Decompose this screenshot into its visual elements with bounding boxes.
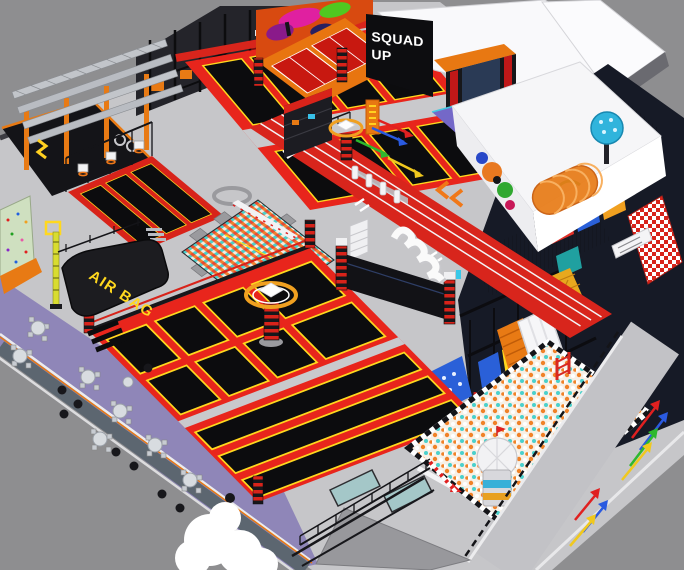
squad-up-text-line2: UP <box>371 47 391 64</box>
striped-corner-post <box>253 476 263 504</box>
cyan-lamp <box>456 270 461 279</box>
trampoline-park-render: SQUAD UP <box>0 0 684 570</box>
stage-curtain <box>450 70 458 108</box>
striped-column <box>337 48 347 82</box>
striped-column <box>254 58 263 86</box>
striped-corner-post <box>305 220 315 248</box>
scene-canvas: SQUAD UP <box>0 0 684 570</box>
